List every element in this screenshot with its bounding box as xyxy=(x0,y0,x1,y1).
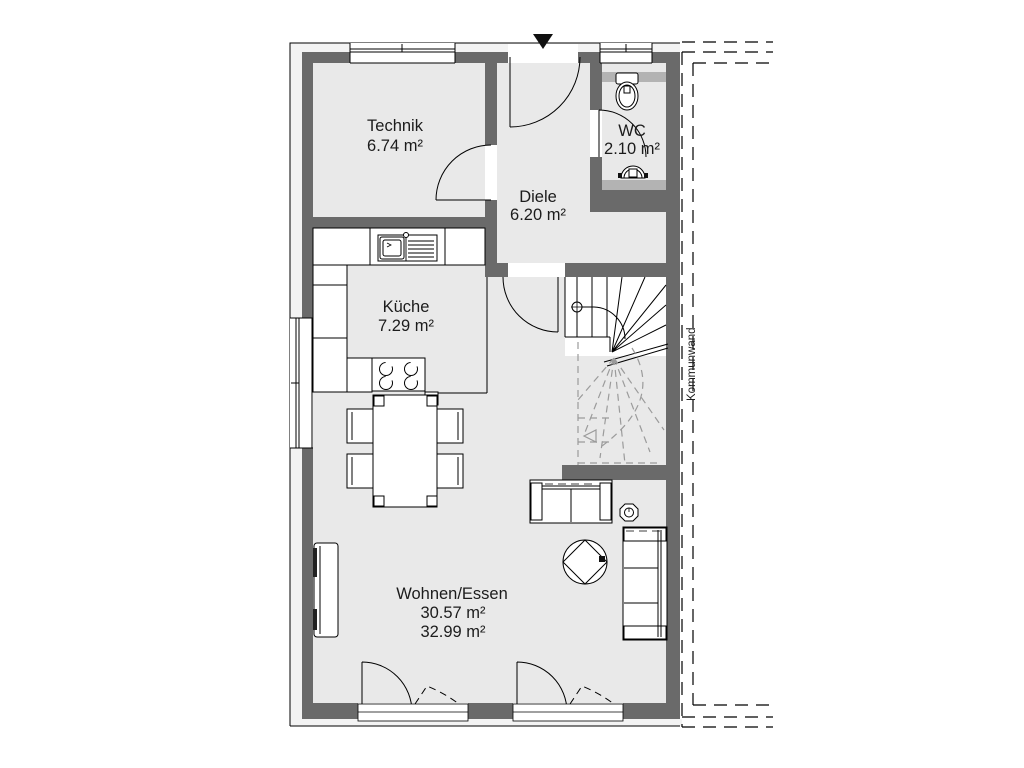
coffee-table xyxy=(563,540,607,584)
stove-icon xyxy=(372,358,425,391)
room-area-technik: 6.74 m² xyxy=(367,137,423,155)
wc-sill-bottom xyxy=(602,180,666,190)
window-left-kueche xyxy=(290,318,313,448)
sink-icon xyxy=(378,233,437,262)
room-label-wohnen: Wohnen/Essen xyxy=(396,585,508,603)
room-label-diele: Diele xyxy=(519,188,557,206)
room-label-kueche: Küche xyxy=(383,298,430,316)
dining-table xyxy=(373,395,437,507)
floorplan-canvas: Technik 6.74 m² Diele 6.20 m² WC 2.10 m²… xyxy=(0,0,1024,768)
sideboard xyxy=(313,543,338,637)
sofa-vertical xyxy=(623,527,667,640)
room-area-diele: 6.20 m² xyxy=(510,206,566,224)
sofa-horizontal xyxy=(530,480,612,523)
room-label-wc: WC xyxy=(618,122,646,140)
floorplan-page: Technik 6.74 m² Diele 6.20 m² WC 2.10 m²… xyxy=(0,0,1024,768)
window-top-wc xyxy=(600,43,652,63)
toilet-icon xyxy=(616,73,638,110)
floor-lamp-icon xyxy=(620,504,638,521)
window-top-technik xyxy=(350,43,455,63)
room-label-technik: Technik xyxy=(367,117,424,135)
room-area-kueche: 7.29 m² xyxy=(378,317,434,335)
room-area-wohnen: 30.57 m² xyxy=(420,604,486,622)
party-wall-label: Kommunwand xyxy=(686,327,698,401)
room-area-wc: 2.10 m² xyxy=(604,140,660,158)
room-area2-wohnen: 32.99 m² xyxy=(420,623,486,641)
